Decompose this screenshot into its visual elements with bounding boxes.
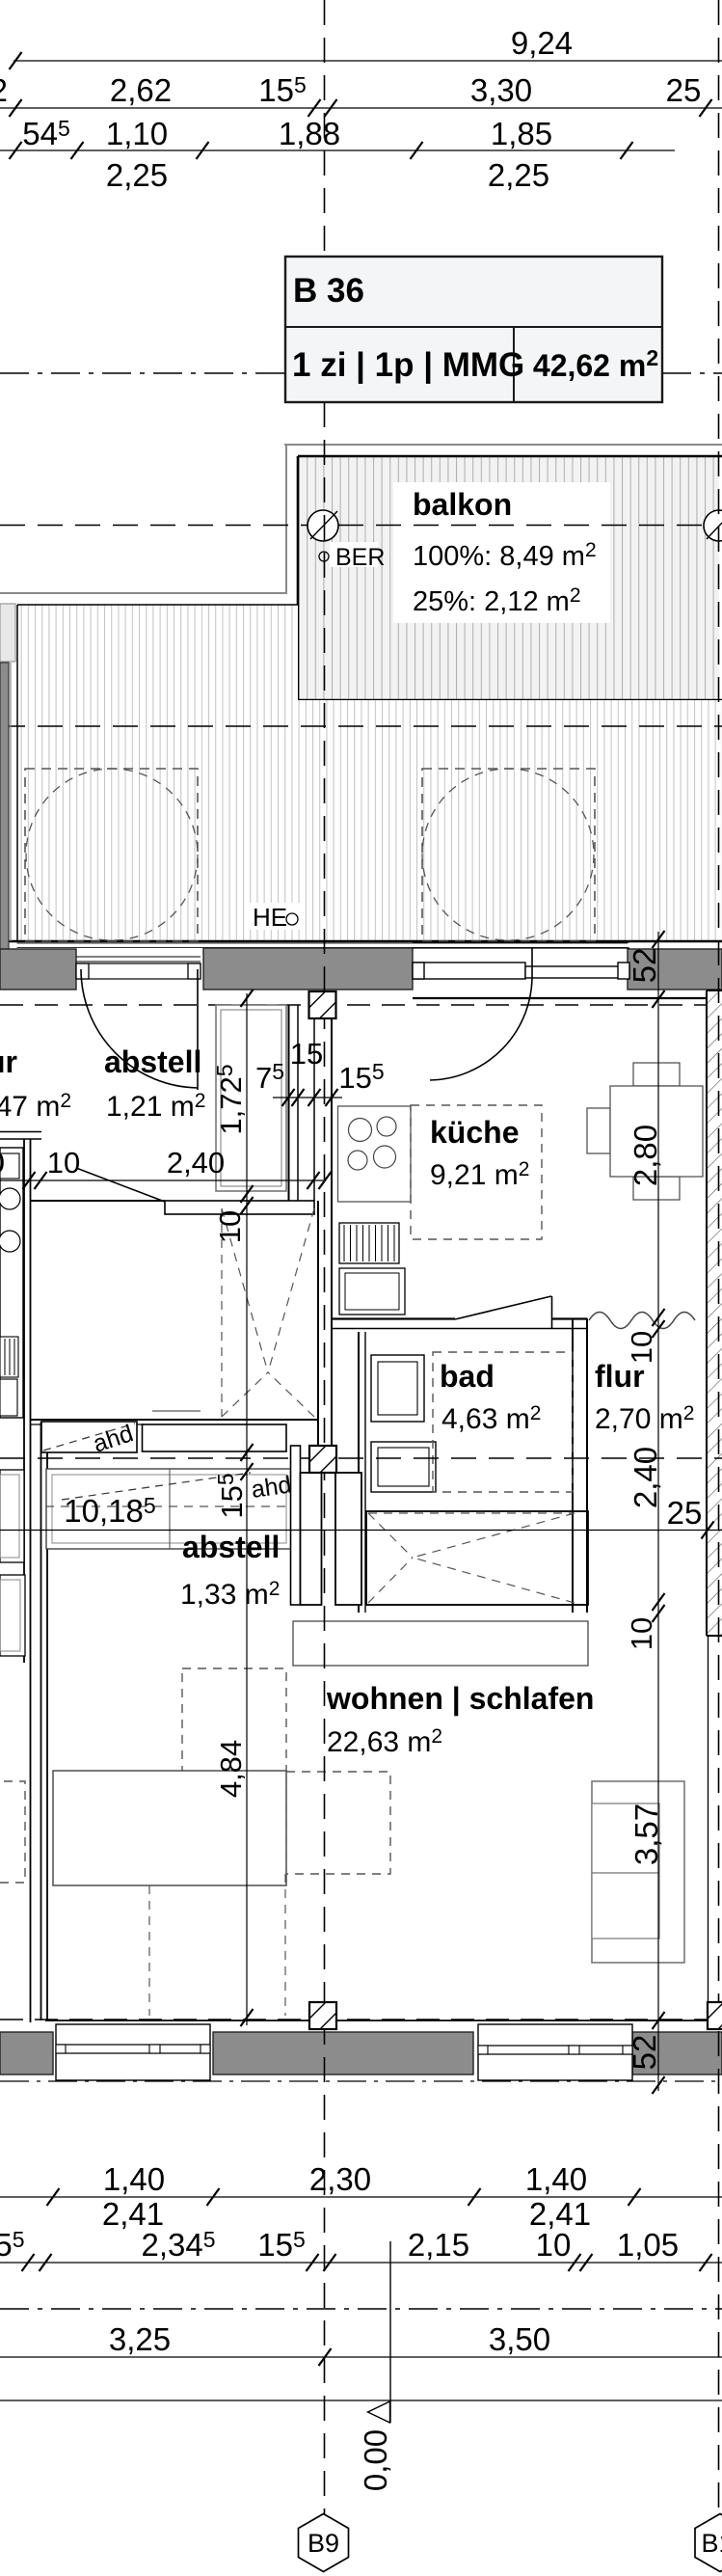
- svg-text:1,21 m2: 1,21 m2: [106, 1090, 205, 1123]
- svg-text:0: 0: [0, 1146, 5, 1180]
- svg-text:B 36: B 36: [293, 272, 364, 310]
- svg-text:1,40: 1,40: [525, 2161, 587, 2197]
- svg-text:2,25: 2,25: [488, 157, 549, 193]
- svg-text:42,62 m2: 42,62 m2: [533, 345, 658, 383]
- svg-text:2,30: 2,30: [309, 2161, 371, 2197]
- svg-text:10: 10: [47, 1146, 80, 1180]
- svg-text:25%: 2,12 m2: 25%: 2,12 m2: [413, 584, 581, 617]
- svg-text:52: 52: [627, 948, 662, 984]
- svg-text:3,57: 3,57: [628, 1803, 664, 1865]
- svg-text:abstell: abstell: [182, 1530, 280, 1564]
- svg-text:9,24: 9,24: [511, 25, 573, 61]
- svg-text:10: 10: [625, 1617, 658, 1650]
- svg-text:wohnen | schlafen: wohnen | schlafen: [326, 1681, 594, 1716]
- svg-text:1,10: 1,10: [106, 116, 168, 151]
- svg-text:1 zi | 1p | MMG: 1 zi | 1p | MMG: [292, 346, 524, 384]
- svg-text:2,40: 2,40: [628, 1447, 663, 1508]
- svg-text:2,40: 2,40: [167, 1146, 225, 1180]
- svg-text:1,85: 1,85: [491, 116, 552, 151]
- svg-text:1,88: 1,88: [279, 116, 340, 151]
- svg-text:1,40: 1,40: [103, 2161, 165, 2197]
- svg-text:52: 52: [627, 2035, 662, 2071]
- svg-text:B9: B9: [308, 2529, 339, 2558]
- svg-text:2,70 m2: 2,70 m2: [595, 1402, 694, 1435]
- svg-text:abstell: abstell: [104, 1044, 201, 1079]
- svg-text:2,15: 2,15: [408, 2227, 469, 2263]
- svg-text:3,50: 3,50: [489, 2321, 550, 2357]
- svg-text:küche: küche: [430, 1115, 519, 1150]
- svg-text:3,25: 3,25: [109, 2321, 171, 2357]
- svg-text:HE: HE: [253, 903, 287, 932]
- svg-text:2,80: 2,80: [628, 1125, 663, 1186]
- svg-text:10,185: 10,185: [64, 1493, 155, 1529]
- svg-text:10: 10: [536, 2227, 572, 2263]
- svg-text:3,30: 3,30: [470, 72, 532, 108]
- svg-text:10: 10: [213, 1210, 247, 1243]
- svg-text:BER: BER: [335, 544, 385, 571]
- svg-text:22,63 m2: 22,63 m2: [327, 1725, 442, 1758]
- svg-text:2,25: 2,25: [106, 157, 168, 193]
- svg-text:25: 25: [666, 72, 702, 108]
- svg-text:1,05: 1,05: [617, 2227, 679, 2263]
- svg-text:4,84: 4,84: [214, 1740, 248, 1798]
- svg-text:bad: bad: [440, 1359, 495, 1394]
- svg-text:100%: 8,49 m2: 100%: 8,49 m2: [413, 539, 597, 572]
- svg-text:flur: flur: [0, 1044, 17, 1079]
- svg-text:2: 2: [0, 72, 8, 108]
- svg-text:2,62: 2,62: [110, 72, 172, 108]
- svg-text:flur: flur: [595, 1359, 645, 1394]
- svg-text:4,63 m2: 4,63 m2: [441, 1402, 541, 1435]
- svg-text:1,33 m2: 1,33 m2: [180, 1578, 280, 1611]
- svg-text:9,21 m2: 9,21 m2: [430, 1158, 529, 1191]
- svg-text:25: 25: [667, 1495, 703, 1531]
- svg-text:balkon: balkon: [413, 487, 512, 522]
- svg-text:15: 15: [290, 1037, 323, 1071]
- svg-text:B1: B1: [701, 2529, 722, 2558]
- svg-text:0,00: 0,00: [358, 2429, 393, 2491]
- svg-text:ahd: ahd: [250, 1471, 293, 1504]
